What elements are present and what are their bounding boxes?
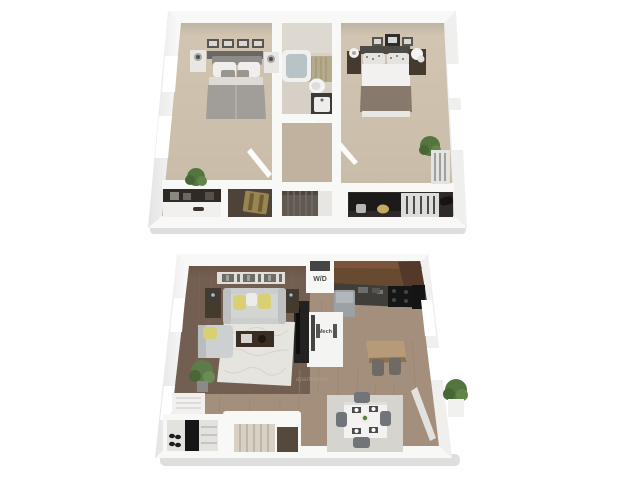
svg-text:W/D: W/D — [313, 276, 327, 283]
svg-text:apartments: apartments — [296, 376, 329, 383]
svg-text:Mech: Mech — [318, 329, 333, 335]
